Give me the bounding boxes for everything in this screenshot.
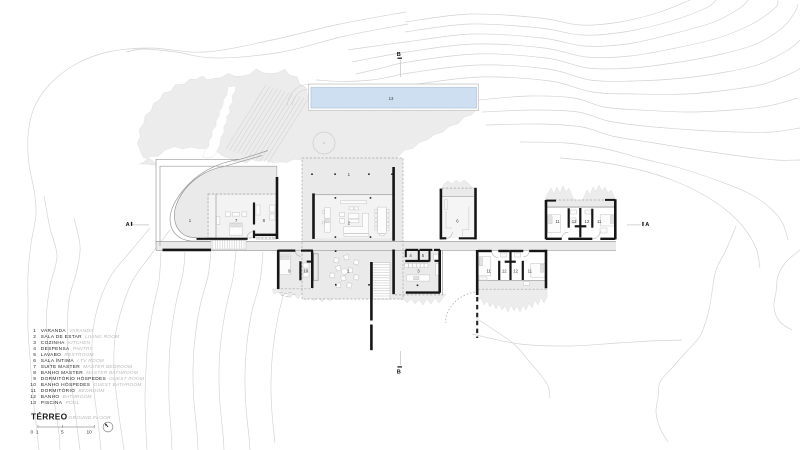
- svg-text:12: 12: [30, 394, 36, 400]
- svg-text:3: 3: [33, 340, 36, 346]
- svg-text:10: 10: [30, 382, 36, 388]
- svg-text:12: 12: [572, 219, 577, 224]
- svg-text:BANHOBATHROOM: BANHOBATHROOM: [41, 394, 92, 400]
- svg-text:DESPENSAPANTRY: DESPENSAPANTRY: [41, 346, 94, 352]
- svg-text:1: 1: [36, 430, 39, 436]
- svg-text:SALA DE ESTARLIVING ROOM: SALA DE ESTARLIVING ROOM: [41, 334, 120, 340]
- svg-text:12: 12: [513, 268, 518, 273]
- svg-text:DORMITÓRIO HÓSPEDESGUEST ROOM: DORMITÓRIO HÓSPEDESGUEST ROOM: [41, 375, 144, 382]
- svg-text:SALA ÍNTIMA/ TV ROOM: SALA ÍNTIMA/ TV ROOM: [41, 357, 104, 364]
- svg-text:B: B: [397, 52, 401, 58]
- svg-text:5: 5: [33, 352, 36, 358]
- svg-text:7: 7: [33, 364, 36, 370]
- svg-text:11: 11: [31, 388, 37, 394]
- svg-text:LAVABORESTROOM: LAVABORESTROOM: [41, 352, 94, 358]
- svg-text:2: 2: [33, 334, 36, 340]
- svg-text:TÉRREO: TÉRREO: [31, 411, 68, 422]
- svg-text:PISCINAPOOL: PISCINAPOOL: [41, 400, 80, 406]
- svg-text:5: 5: [61, 430, 64, 436]
- svg-text:0: 0: [31, 430, 34, 436]
- svg-text:10: 10: [303, 268, 308, 273]
- svg-text:11: 11: [528, 268, 533, 273]
- svg-text:11: 11: [555, 219, 560, 224]
- svg-text:8: 8: [33, 370, 36, 376]
- svg-text:12: 12: [502, 268, 507, 273]
- svg-text:9: 9: [33, 376, 36, 382]
- svg-text:11: 11: [597, 219, 602, 224]
- svg-text:4: 4: [33, 346, 36, 352]
- svg-text:10: 10: [87, 430, 93, 436]
- svg-text:13: 13: [389, 96, 394, 101]
- svg-text:1: 1: [33, 328, 36, 334]
- svg-text:DORMITÓRIOBEDROOM: DORMITÓRIOBEDROOM: [41, 387, 105, 394]
- svg-text:GROUND FLOOR: GROUND FLOOR: [69, 415, 112, 421]
- svg-text:B: B: [397, 370, 401, 376]
- svg-text:6: 6: [33, 358, 36, 364]
- svg-text:13: 13: [30, 400, 36, 406]
- svg-text:A: A: [645, 222, 649, 228]
- svg-text:BANHO MASTERMASTER BATHROOM: BANHO MASTERMASTER BATHROOM: [41, 370, 138, 376]
- svg-text:A: A: [126, 222, 130, 228]
- svg-text:SUITE MASTERMASTER BEDROOM: SUITE MASTERMASTER BEDROOM: [41, 364, 132, 370]
- svg-text:11: 11: [486, 268, 491, 273]
- svg-text:12: 12: [585, 219, 590, 224]
